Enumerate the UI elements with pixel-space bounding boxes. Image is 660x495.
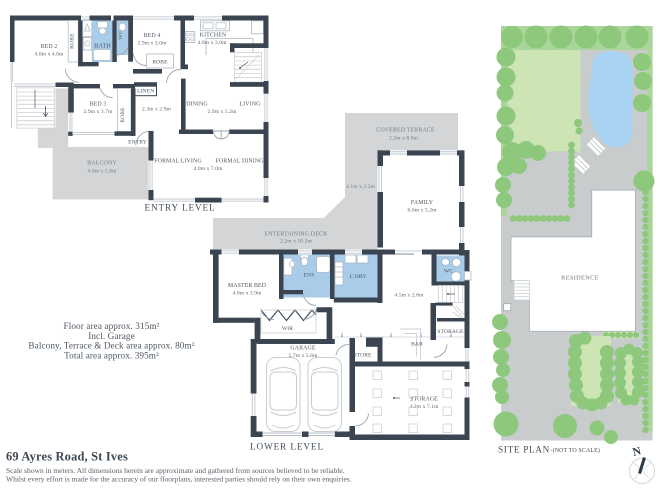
svg-text:LINEN: LINEN <box>137 88 154 94</box>
svg-text:4.0m x 7.0m: 4.0m x 7.0m <box>194 166 224 172</box>
svg-text:4.5m x 2.8m: 4.5m x 2.8m <box>395 293 425 299</box>
svg-text:BED 4: BED 4 <box>144 33 161 39</box>
svg-text:FORMAL LIVING: FORMAL LIVING <box>154 159 202 165</box>
svg-text:ROBE: ROBE <box>152 60 168 66</box>
svg-text:SITE PLAN: SITE PLAN <box>498 445 550 455</box>
svg-text:4.0m x 4.0m: 4.0m x 4.0m <box>35 52 65 58</box>
svg-text:BAR: BAR <box>411 342 423 348</box>
svg-text:4.0m x 3.9m: 4.0m x 3.9m <box>233 291 263 297</box>
svg-text:KITCHEN: KITCHEN <box>200 33 227 39</box>
svg-text:2.3m x 2.9m: 2.3m x 2.9m <box>142 107 172 113</box>
svg-text:2.9m x 3.0m: 2.9m x 3.0m <box>138 41 168 47</box>
svg-text:BALCONY: BALCONY <box>87 161 117 167</box>
svg-text:Balcony, Terrace & Deck area a: Balcony, Terrace & Deck area approx. 80m… <box>28 341 194 351</box>
svg-text:WC: WC <box>118 30 124 39</box>
svg-text:RESIDENCE: RESIDENCE <box>561 275 599 282</box>
svg-text:ENTERTAINING DECK: ENTERTAINING DECK <box>264 232 328 238</box>
svg-text:Floor area approx. 315m²: Floor area approx. 315m² <box>64 321 160 331</box>
svg-text:Total area approx. 395m²: Total area approx. 395m² <box>64 351 159 361</box>
svg-text:L’DRY: L’DRY <box>350 274 367 280</box>
svg-text:4.0m x 5.8m: 4.0m x 5.8m <box>88 169 118 175</box>
svg-text:BED 3: BED 3 <box>90 102 107 108</box>
svg-text:ENTRY: ENTRY <box>128 140 147 146</box>
svg-text:6.0m x 5.2m: 6.0m x 5.2m <box>408 208 438 214</box>
svg-text:DINING: DINING <box>186 102 208 108</box>
svg-text:COVERED TERRACE: COVERED TERRACE <box>376 128 435 134</box>
svg-text:2.9m x 5.2m: 2.9m x 5.2m <box>208 109 238 115</box>
svg-text:WC: WC <box>444 269 453 275</box>
svg-text:69 Ayres Road, St Ives: 69 Ayres Road, St Ives <box>6 450 128 464</box>
svg-text:ENTRY LEVEL: ENTRY LEVEL <box>144 203 215 213</box>
svg-text:STORE: STORE <box>353 353 372 359</box>
svg-text:WIR: WIR <box>282 326 293 332</box>
svg-text:Whilst every effort is made fo: Whilst every effort is made for the accu… <box>6 474 352 483</box>
svg-text:BATH: BATH <box>94 43 111 50</box>
svg-text:-(NOT TO SCALE): -(NOT TO SCALE) <box>551 447 601 454</box>
svg-text:2.2m x 10.2m: 2.2m x 10.2m <box>280 239 312 245</box>
svg-text:4.1m x 2.2m: 4.1m x 2.2m <box>346 184 376 190</box>
svg-text:LIVING: LIVING <box>240 102 262 108</box>
svg-text:ENS: ENS <box>304 273 315 279</box>
svg-text:FAMILY: FAMILY <box>411 200 434 206</box>
svg-text:2.9m x 3.7m: 2.9m x 3.7m <box>84 109 114 115</box>
svg-text:4.0m x 3.0m: 4.0m x 3.0m <box>198 40 228 46</box>
svg-text:MASTER BED: MASTER BED <box>228 283 267 289</box>
svg-text:2.3m x 8.0m: 2.3m x 8.0m <box>389 136 419 142</box>
svg-text:FORMAL DINING: FORMAL DINING <box>215 159 264 165</box>
svg-text:Incl. Garage: Incl. Garage <box>88 331 135 341</box>
svg-text:ROBE: ROBE <box>120 107 126 123</box>
svg-text:ROBE: ROBE <box>70 33 76 49</box>
svg-text:BED 2: BED 2 <box>41 44 58 50</box>
svg-text:STORAGE: STORAGE <box>437 329 464 335</box>
svg-text:GARAGE: GARAGE <box>290 346 315 352</box>
svg-text:LOWER LEVEL: LOWER LEVEL <box>250 442 324 452</box>
